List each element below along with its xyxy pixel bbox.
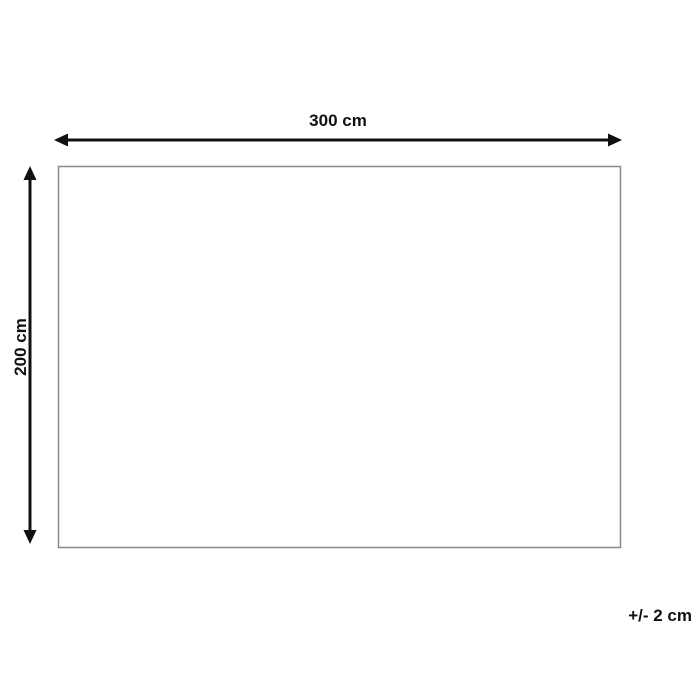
height-arrow-bottom-head-icon: [24, 530, 37, 544]
dimension-diagram: 300 cm 200 cm +/- 2 cm: [0, 0, 700, 700]
width-arrow-right-head-icon: [608, 134, 622, 147]
tolerance-label: +/- 2 cm: [552, 605, 692, 627]
width-arrow-left-head-icon: [54, 134, 68, 147]
diagram-graphics: [0, 0, 700, 700]
width-dimension-arrow-icon: [54, 134, 622, 147]
product-outline-rect: [59, 167, 621, 548]
height-dimension-label: 200 cm: [10, 277, 32, 417]
height-arrow-top-head-icon: [24, 166, 37, 180]
width-dimension-label: 300 cm: [54, 110, 622, 132]
